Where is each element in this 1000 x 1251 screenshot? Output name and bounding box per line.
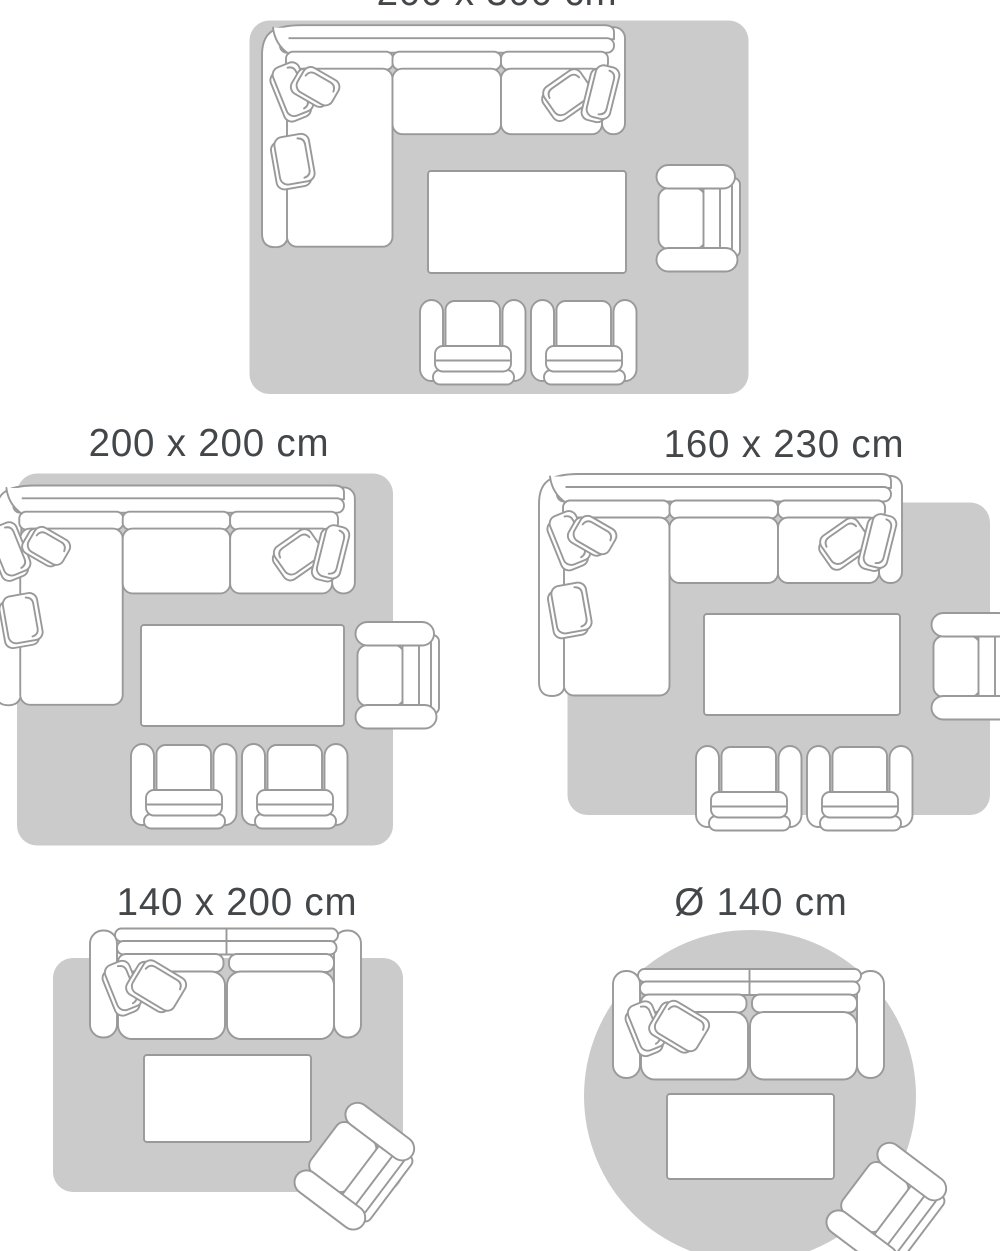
svg-text:160 x 230 cm: 160 x 230 cm <box>664 423 905 466</box>
svg-text:Ø 140 cm: Ø 140 cm <box>674 881 847 924</box>
svg-text:200 x 300 cm: 200 x 300 cm <box>377 0 618 14</box>
svg-text:200 x 200 cm: 200 x 200 cm <box>89 422 330 465</box>
svg-text:140 x 200 cm: 140 x 200 cm <box>117 881 358 924</box>
